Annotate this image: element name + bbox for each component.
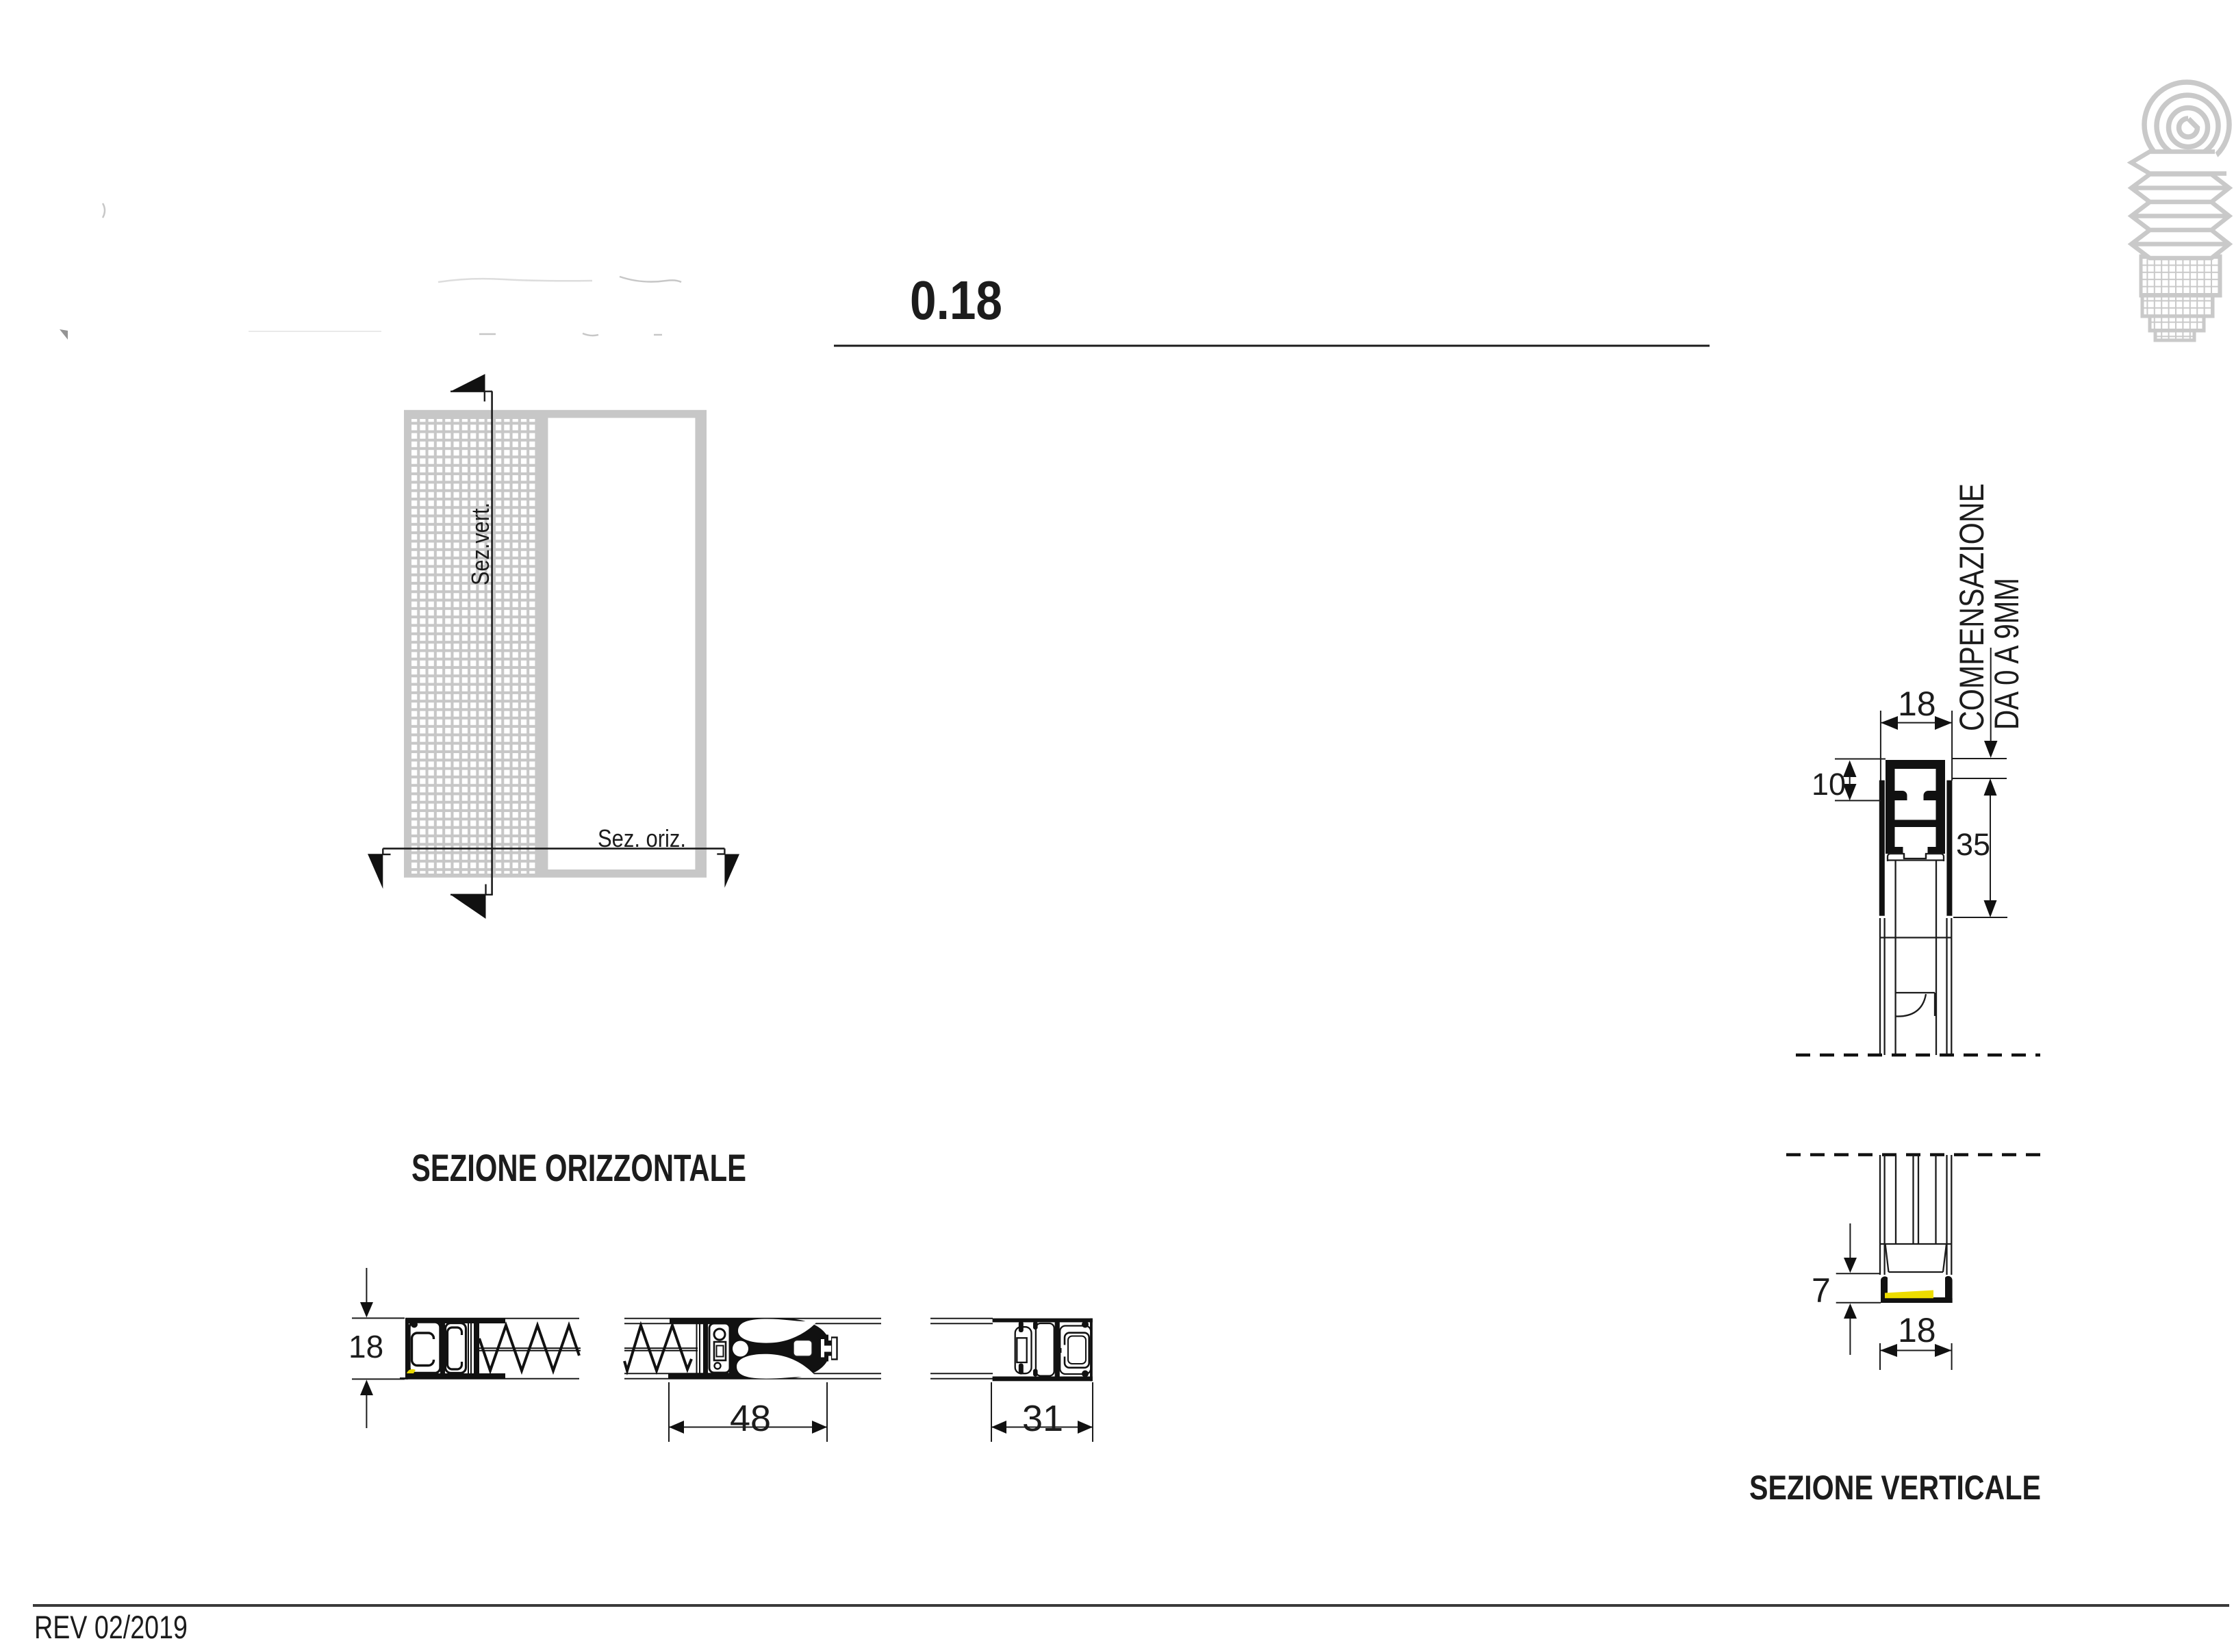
svg-text:COMPENSAZIONE: COMPENSAZIONE: [1953, 483, 1991, 731]
svg-text:REV 02/2019: REV 02/2019: [34, 1609, 188, 1645]
svg-text:Sez. oriz.: Sez. oriz.: [598, 824, 686, 852]
svg-text:DA 0 A 9MM: DA 0 A 9MM: [1988, 578, 2026, 730]
svg-text:31: 31: [1022, 1398, 1063, 1439]
svg-text:48: 48: [730, 1398, 771, 1439]
svg-text:Sez.vert.: Sez.vert.: [466, 503, 494, 585]
svg-text:SEZIONE ORIZZONTALE: SEZIONE ORIZZONTALE: [411, 1146, 746, 1189]
svg-text:35: 35: [1956, 827, 1990, 862]
svg-text:7: 7: [1812, 1271, 1831, 1310]
svg-text:18: 18: [1898, 1311, 1936, 1349]
svg-text:18: 18: [348, 1329, 383, 1364]
svg-text:0.18: 0.18: [910, 270, 1002, 331]
svg-text:18: 18: [1898, 685, 1936, 723]
svg-text:SEZIONE VERTICALE: SEZIONE VERTICALE: [1749, 1469, 2041, 1507]
svg-text:10: 10: [1812, 767, 1846, 802]
